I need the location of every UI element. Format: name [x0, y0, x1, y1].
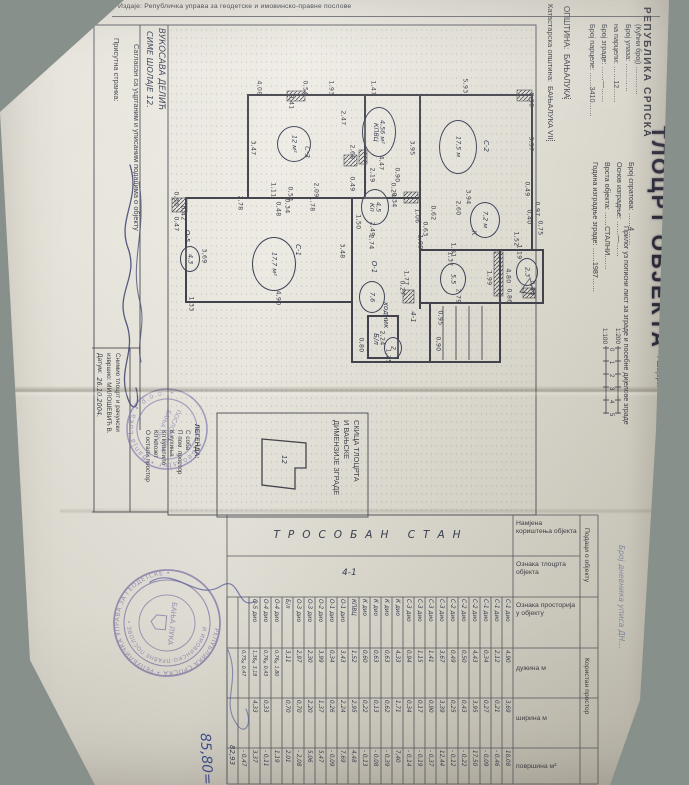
plan-dimension-label: 0,41 [288, 95, 295, 110]
form-field-right: Година изградње зграде: ……1987…… [591, 162, 600, 292]
plan-dimension-label: 1,06 [414, 209, 421, 224]
form-field-left: Број улаза: ………… [624, 24, 633, 92]
scale-tick-label: 4 [608, 400, 614, 403]
skica-building-number: 12 [280, 455, 288, 464]
surveyor-label-2: извршио: МИЛОШЕВИЋ В. [105, 353, 112, 434]
form-field-left: Број парцеле: ……3410…… [588, 24, 597, 117]
table-cell: 2,30 [306, 650, 312, 696]
plan-area-value: 17,7 м² [271, 252, 278, 276]
table-cell: 3,37 [251, 750, 257, 784]
plan-area-circle: Кп4,5 [361, 189, 389, 225]
table-cell: 2,97 [295, 650, 301, 696]
scale-tick-label: 0 [608, 348, 614, 351]
table-cell: 3,43 [339, 650, 345, 696]
form-field-left: на парцели: ……12…… [612, 24, 621, 103]
plan-dimension-label: 4,90 [275, 291, 282, 306]
table-cell: 7,40 [394, 750, 400, 784]
scale-ratio-1: 1:100 [601, 328, 608, 344]
table-header-length: дужина м [516, 662, 577, 699]
form-field-right: Основ изградње: ……—…… [615, 162, 624, 257]
table-side-label-object-data: Подаци о објекту [583, 528, 590, 582]
paper-curl-shadow [628, 0, 672, 785]
plan-dimension-label: 0,97 [534, 202, 541, 217]
issuer-line: Издаје: Републичка управа за геодетске и… [118, 3, 351, 10]
table-header-plan-mark: Ознака тлоцрта објекта [516, 558, 577, 598]
skica-title-line-1: СКИЦА ТЛОЦРТА [352, 420, 361, 482]
plan-dimension-label: 2,79 [455, 289, 462, 304]
fold-crease-main [0, 386, 672, 397]
table-total: 82,93 [228, 745, 236, 765]
table-cell: 12,44 [438, 750, 444, 784]
svg-text:• GeoAstor • Banja Luka • d.o.: • GeoAstor • Banja Luka • d.o.o. • [115, 377, 219, 481]
table-cell: С-2 дио [449, 599, 455, 646]
table-cell: 0,94 [405, 650, 411, 696]
owner-name: ВУКОСАВА ДЕЛИЋ [156, 28, 166, 110]
plan-room-label: К [470, 231, 478, 236]
table-cell: 0,34 [482, 650, 488, 696]
table-cell: О-2 дио [317, 599, 323, 646]
plan-dimension-label: 0,54 [287, 187, 294, 202]
table-cell: 3,11 [284, 650, 290, 696]
plan-dimension-label: 2,09 [313, 183, 320, 198]
plan-dimension-label: 1,78 [309, 197, 316, 212]
plan-area-value: 7,2 м [482, 211, 489, 228]
plan-dimension-label: 5,93 [462, 79, 469, 94]
plan-area-circle: 2,3 [516, 258, 538, 286]
agreement-text: Сагласан са уцртаним и уписаним подацима… [132, 44, 141, 231]
table-cell: 1,36×3,18 [251, 650, 256, 696]
table-cell: - 0,39 [383, 750, 389, 784]
svg-text:БАЊА ЛУКА: БАЊА ЛУКА [166, 602, 178, 646]
table-cell: 2,12 [493, 650, 499, 696]
plan-area-circle: КПВЦ4,56 м² [362, 107, 396, 157]
table-cell: 3,99 [317, 650, 323, 696]
table-cell: 2,01 [284, 750, 290, 784]
plan-dimension-label: 2,68 [349, 145, 356, 160]
plan-dimension-label: 1,81 [450, 243, 457, 258]
surveyor-label-1: Снимио тлоцрт и рачунски [114, 353, 121, 432]
floor-plan-annotations: 4,080,410,541,931,475,930,503,472,472,68… [0, 0, 689, 785]
plan-dimension-label: 0,86 [506, 289, 513, 304]
plan-dimension-label: 0,43 [529, 281, 536, 296]
plan-area-value: 12 м² [291, 135, 298, 153]
legend-item: П пом. простор [176, 430, 183, 474]
table-cell: 4,43 [471, 650, 477, 696]
table-cell: С-2 дио [460, 599, 466, 646]
table-cell: С-1 дио [493, 599, 499, 646]
table-cell: Б/л [284, 599, 290, 646]
date-value: 26.10.2004. [95, 377, 103, 417]
table-cell: 0,76×1,80 [273, 650, 278, 696]
table-cell: - 0,19 [416, 750, 422, 784]
owner-address: СИМЕ ШОЛАЈЕ 12. [145, 31, 155, 108]
plan-dimension-label: 2,19 [369, 168, 376, 183]
table-cell: О-3 дио [306, 599, 312, 646]
municipality-line: ОПШТИНА: БАЊАЛУКА [562, 6, 571, 99]
legend-item: Кл клозет [152, 430, 159, 458]
svg-text:БАЊА ЛУКА: БАЊА ЛУКА [151, 408, 172, 446]
plan-area-circle: 17,7 м² [252, 237, 296, 291]
table-cell: 1,15 [416, 650, 422, 696]
table-cell: 3,67 [438, 650, 444, 696]
table-cell: 0,90 [427, 700, 433, 746]
plan-area-value: 4,56 м² [379, 120, 386, 144]
table-cell: 0,76×0,43 [262, 650, 267, 696]
table-cell: О-4 дио [262, 599, 268, 646]
plan-dimension-label: 0,40 [526, 210, 533, 225]
scale-tick-label: 2 [608, 374, 614, 377]
plan-dimension-label: 4,80 [505, 269, 512, 284]
cadastral-value: БАЊАЛУКА VII [546, 86, 555, 140]
plan-dimension-label: 0,34 [284, 199, 291, 214]
plan-dimension-label: 1,37 [447, 252, 454, 267]
geoastor-round-stamp: • GeoAstor • Banja Luka • d.o.o. • ПОСЛО… [111, 373, 223, 485]
svg-text:ПОСЛОВНИЦА: ПОСЛОВНИЦА [158, 408, 182, 453]
subtitle-line: Прилог уз пописни лист за зграде и посеб… [622, 226, 629, 425]
plan-dimension-label: 2,47 [340, 111, 347, 126]
plan-dimension-label: 0,47 [173, 217, 180, 232]
plan-dimension-label: 3,94 [465, 190, 472, 205]
date-label: Датум: [96, 353, 103, 374]
table-cell: 0,75×0,47 [240, 650, 245, 696]
table-cell: 4,33 [251, 700, 257, 746]
table-cell: 1,19 [273, 750, 279, 784]
plan-area-value: 5,5 [450, 274, 457, 284]
plan-dimension-label: 1,33 [188, 297, 195, 312]
plan-area-value: 7,6 [369, 292, 376, 302]
table-cell: 3,39 [438, 700, 444, 746]
plan-area-circle: 7,2 м [470, 202, 500, 238]
fold-crease-light [60, 508, 660, 514]
table-cell: 0,25 [449, 700, 455, 746]
table-cell: О-3 дио [295, 599, 301, 646]
municipality-label: ОПШТИНА: [562, 6, 571, 49]
plan-dimension-label: 0,49 [349, 177, 356, 192]
plan-and-table-linework [0, 0, 689, 785]
table-cell: 0,70 [284, 700, 290, 746]
table-cell: 5,06 [306, 750, 312, 784]
table-header-area: површина м² [516, 760, 577, 785]
table-total-corrected: 85,80= [197, 733, 216, 785]
scale-label: Размјера: [655, 356, 662, 387]
plan-area-value: Кп [368, 203, 375, 212]
plan-mark-value: 4-1 [342, 568, 357, 578]
plan-dimension-label: 4,08 [256, 81, 263, 96]
skica-title-line-2: И ВАЊСКЕ [342, 420, 351, 459]
table-cell: О-4 дио [273, 599, 279, 646]
plan-room-label: Б/л [372, 333, 380, 345]
table-cell: 0,27 [482, 700, 488, 746]
plan-dimension-label: 3,48 [339, 244, 346, 259]
plan-dimension-label: 1,11 [270, 183, 277, 198]
plan-area-circle: 4,3 [180, 246, 200, 272]
plan-dimension-label: 1,93 [328, 81, 335, 96]
table-cell: 0,22 [361, 700, 367, 746]
scale-ratio-2: 1:200 [614, 328, 621, 344]
table-cell: - 0,22 [460, 750, 466, 784]
plan-dimension-label: 3,69 [201, 249, 208, 264]
plan-dimension-label: 3,57 [528, 137, 535, 152]
plan-room-label: С-3 [303, 146, 311, 158]
table-cell: 0,13 [372, 700, 378, 746]
plan-dimension-label: 1,50 [355, 215, 362, 230]
skica-title-line-3: ДИМЕНЗИЈЕ ЗГРАДЕ [332, 420, 341, 495]
plan-area-value: 2 [390, 346, 397, 350]
plan-frame-texture [169, 26, 535, 514]
plan-dimension-label: 4,47 [378, 156, 385, 171]
journal-note: Број дневника уписа ДН… [617, 545, 626, 649]
form-field-right: Врста објекта: ……СТАЛНИ…… [603, 162, 612, 270]
table-cell: - 0,11 [262, 750, 268, 784]
table-cell: - 0,09 [328, 750, 334, 784]
plan-dimension-label: 0,48 [275, 202, 282, 217]
table-cell: С-2 дио [471, 599, 477, 646]
table-cell: О-1 дио [339, 599, 345, 646]
form-field-left: Број зграде: ……—…… [600, 24, 609, 102]
plan-area-value: 4,3 [187, 254, 194, 264]
table-cell: - 0,09 [482, 750, 488, 784]
plan-area-circle: 12 м² [277, 126, 311, 162]
table-cell: 0,34 [328, 650, 334, 696]
plan-dimension-label: 0,34 [391, 193, 398, 208]
legend-item: Кп купатило [160, 430, 167, 465]
table-cell: 0,21 [493, 700, 499, 746]
plan-dimension-label: 0,49 [524, 182, 531, 197]
table-cell: 0,50 [460, 650, 466, 696]
plan-area-value: 2,3 [524, 267, 531, 277]
plan-dimension-label: 0,63 [422, 222, 429, 237]
plan-area-value: 17,5 м [455, 136, 462, 157]
issuer-rule [112, 16, 660, 17]
plan-area-circle: 5,5 [440, 263, 466, 295]
svg-text:И ИМОВИНСКО-ПРАВНЕ ПОСЛОВЕ •: И ИМОВИНСКО-ПРАВНЕ ПОСЛОВЕ • [123, 619, 207, 667]
plan-dimension-label: 0,95 [437, 311, 444, 326]
plan-dimension-label: 1,99 [486, 271, 493, 286]
plan-room-label: С-1 [294, 244, 302, 256]
plan-dimension-label: 0,80 [358, 338, 365, 353]
table-cell: 0,33 [262, 700, 268, 746]
scale-tick-label: 1 [608, 361, 614, 364]
table-cell: С-3 дио [405, 599, 411, 646]
scale-tick-label: 5 [608, 413, 614, 416]
plan-dimension-label: 2,74 [368, 235, 375, 250]
plan-dimension-label: 0,90 [435, 337, 442, 352]
cadastral-label: Катастарска општина: [546, 4, 555, 82]
table-cell: 2,24 [339, 700, 345, 746]
table-cell: 0,17 [416, 700, 422, 746]
scanned-floor-plan-document: Издаје: Републичка управа за геодетске и… [0, 0, 689, 785]
plan-dimension-label: 1,09 [417, 235, 424, 250]
table-cell: 0,63 [383, 650, 389, 696]
table-cell: 3,95 [471, 700, 477, 746]
plan-dimension-label: 0,50 [528, 93, 535, 108]
table-cell: К дио [372, 599, 378, 646]
table-cell: 0,43 [460, 700, 466, 746]
plan-room-label: О-5 [183, 230, 191, 243]
municipality-value: БАЊАЛУКА [562, 54, 571, 99]
table-cell: 0,62 [383, 700, 389, 746]
table-cell: К дио [394, 599, 400, 646]
table-cell: О-5 дио [251, 599, 257, 646]
table-cell: 4,90 [504, 650, 510, 696]
table-cell: 0,34 [405, 700, 411, 746]
table-cell: 2,20 [306, 700, 312, 746]
plan-dimension-label: 1,77 [403, 271, 410, 286]
date-line: Датум: 26.10.2004. [95, 353, 103, 417]
plan-area-circle: 2 [384, 337, 402, 359]
legend-item: С соба [184, 430, 191, 450]
plan-dimension-label: 1,52 [513, 232, 520, 247]
table-cell: 18,08 [504, 750, 510, 784]
table-cell: 1,41 [427, 650, 433, 696]
table-cell: 0,70 [295, 700, 301, 746]
cadastral-line: Катастарска општина: БАЊАЛУКА VII [546, 4, 555, 141]
table-cell: 5,47 [317, 750, 323, 784]
plan-dimension-label: 2,78 [237, 196, 244, 211]
plan-dimension-label: 0,75 [537, 221, 544, 236]
plan-dimension-label: 0,90 [394, 168, 401, 183]
plan-room-label: О-1 [370, 261, 378, 274]
table-cell: 7,69 [339, 750, 345, 784]
table-cell: - 0,47 [240, 750, 246, 784]
legend-item: О остали простор [144, 430, 151, 482]
table-cell: 4,48 [350, 750, 356, 784]
table-header-usage: Намјена кориштења објекта [516, 517, 577, 557]
table-cell: С-3 дио [416, 599, 422, 646]
table-cell: КПВЦ [350, 599, 356, 646]
table-cell: 1,71 [394, 700, 400, 746]
plan-dimension-label: 0,27 [399, 281, 406, 296]
plan-dimension-label: 2,24 [379, 331, 386, 346]
paper-sheet: Издаје: Републичка управа за геодетске и… [0, 0, 689, 785]
plan-dimension-label: 2,49 [369, 222, 376, 237]
form-field-right: Број спратова: ……4…… [627, 162, 636, 245]
table-cell: 0,49 [449, 650, 455, 696]
plan-dimension-label: 2,60 [455, 201, 462, 216]
table-cell: - 0,12 [449, 750, 455, 784]
svg-text:РЕПУБЛИКА СРПСКА • РЕПУБЛИЧКА: РЕПУБЛИКА СРПСКА • РЕПУБЛИЧКА УПРАВА ЗА … [109, 565, 226, 682]
table-cell: - 0,14 [405, 750, 411, 784]
scale-tick-label: 3 [608, 387, 614, 390]
official-round-stamp: РЕПУБЛИКА СРПСКА • РЕПУБЛИЧКА УПРАВА ЗА … [104, 560, 229, 685]
table-cell: О-1 дио [328, 599, 334, 646]
plan-area-circle: 7,6 [359, 281, 385, 313]
plan-dimension-label: 0,24 [390, 183, 397, 198]
plan-dimension-label: 3,47 [250, 141, 257, 156]
plan-dimension-label: 0,36 [173, 192, 180, 207]
present-party-label: Присутна странка: [112, 38, 121, 102]
table-cell: - 0,46 [493, 750, 499, 784]
table-cell: - 0,37 [427, 750, 433, 784]
plan-dimension-label: 0,54 [302, 81, 309, 96]
table-cell: С-1 дио [504, 599, 510, 646]
usage-value: ТРОСОБАН СТАН [236, 529, 506, 541]
table-cell: 2,95 [350, 700, 356, 746]
republic-title: РЕПУБЛИКА СРПСКА [641, 7, 652, 138]
table-cell: - 0,08 [372, 750, 378, 784]
plan-room-label: 4-1 [409, 311, 417, 322]
plan-dimension-label: 3,95 [409, 141, 416, 156]
plan-room-label: С-2 [482, 140, 490, 152]
table-cell: 1,37 [317, 700, 323, 746]
table-cell: 1,52 [350, 650, 356, 696]
table-cell: - 2,08 [295, 750, 301, 784]
table-cell: 0,60 [361, 650, 367, 696]
table-cell: К дио [383, 599, 389, 646]
table-cell: 0,63 [372, 650, 378, 696]
plan-area-circle: 17,5 м [439, 120, 477, 174]
plan-dimension-label: 1,75 [385, 349, 392, 364]
table-cell: С-3 дио [427, 599, 433, 646]
plan-dimension-label: 1,19 [516, 245, 523, 260]
plan-area-value: КПВЦ [372, 123, 379, 142]
legend-title: ЛЕГЕНДА: [193, 424, 200, 459]
table-cell: С-1 дио [482, 599, 488, 646]
table-cell: 4,33 [394, 650, 400, 696]
table-cell: К дио [361, 599, 367, 646]
plan-dimension-label: 0,62 [430, 206, 437, 221]
plan-dimension-label: 1,47 [370, 81, 377, 96]
table-header-width: ширина м [516, 712, 577, 749]
document-title: ТЛОЦРТ ОБЈЕКТА [646, 126, 670, 349]
table-cell: 0,26 [328, 700, 334, 746]
table-cell: 3,69 [504, 700, 510, 746]
form-field-left: (Кућни број) ………… [634, 24, 643, 95]
plan-dimension-label: 0,42 [180, 206, 187, 221]
plan-area-value: 4,5 [375, 202, 382, 212]
table-cell: С-3 дио [438, 599, 444, 646]
legend-item: К кухиња [168, 430, 175, 457]
plan-room-label: ходник [382, 302, 390, 329]
table-cell: - 0,13 [361, 750, 367, 784]
table-side-label-usable-space: Користан простор [583, 658, 590, 714]
table-header-room-mark: Ознака просторија у објекту [516, 599, 577, 649]
table-cell: 17,50 [471, 750, 477, 784]
